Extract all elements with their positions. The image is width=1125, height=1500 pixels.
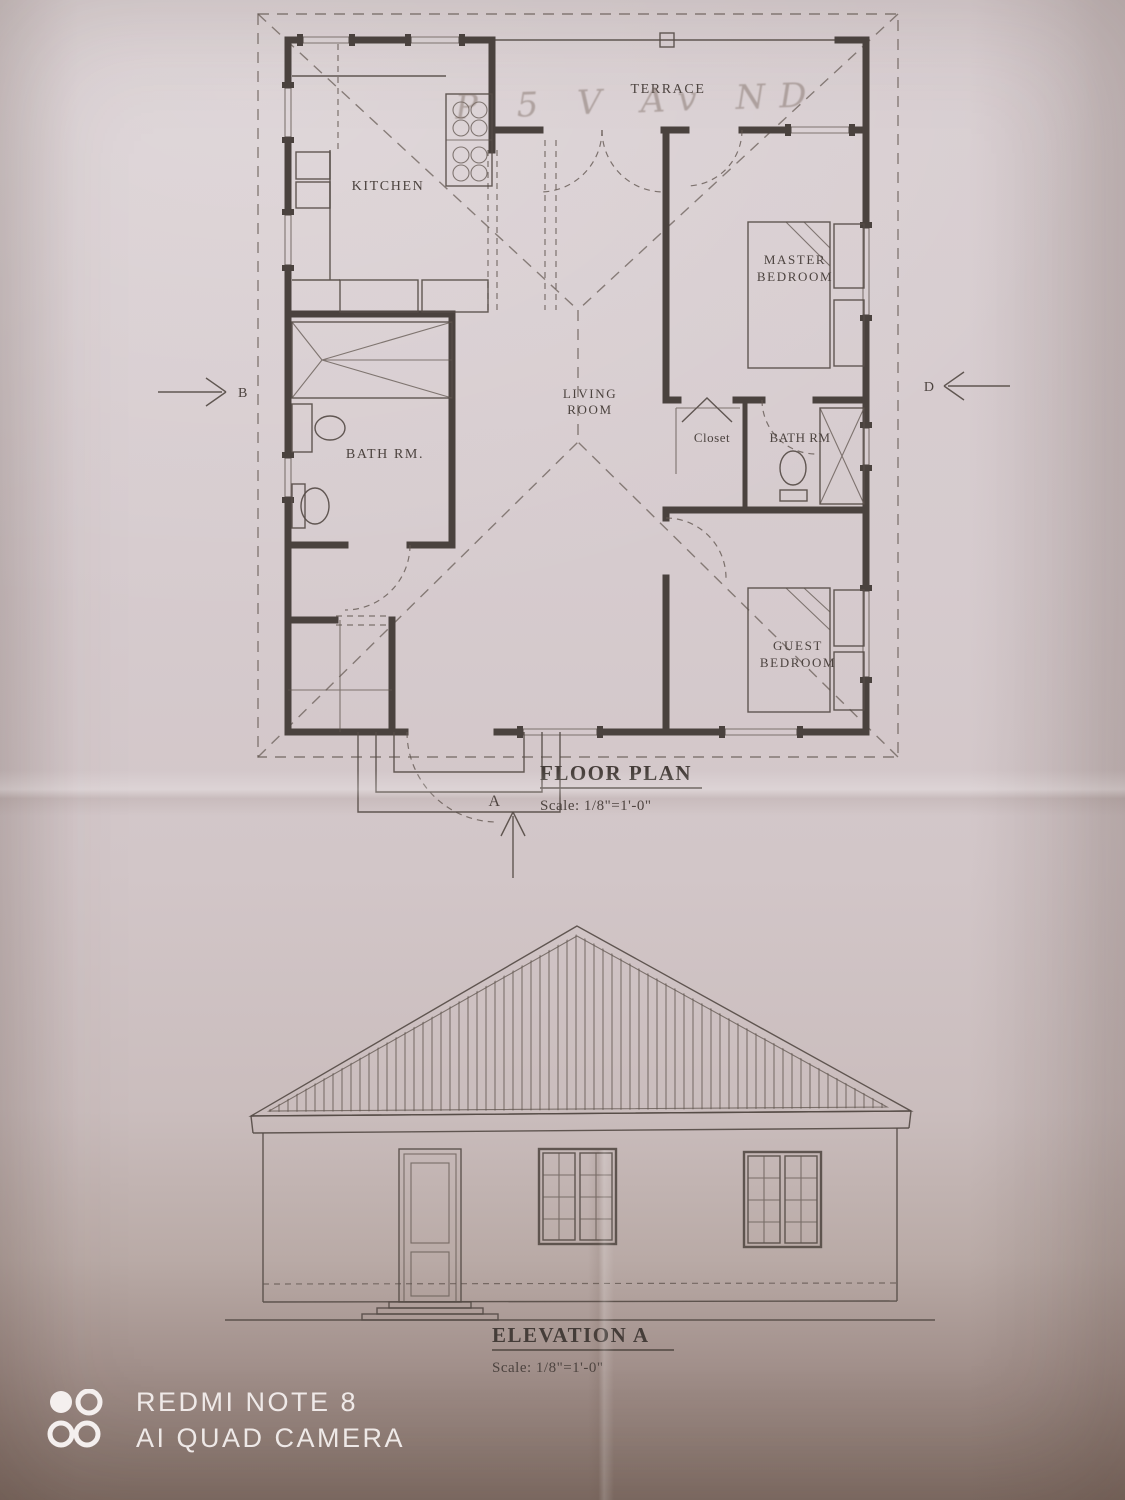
svg-text:B: B bbox=[238, 386, 247, 401]
svg-text:ROOM: ROOM bbox=[567, 402, 612, 417]
elevation-title: ELEVATION A Scale: 1/8"=1'-0" bbox=[492, 1323, 674, 1376]
watermark-device: REDMI NOTE 8 bbox=[136, 1388, 405, 1418]
kitchen-counter bbox=[340, 280, 488, 312]
entrance-steps bbox=[358, 732, 560, 812]
fascia bbox=[251, 1111, 911, 1133]
watermark-camera: AI QUAD CAMERA bbox=[136, 1424, 405, 1454]
redmi-quad-camera-logo-icon bbox=[46, 1389, 116, 1453]
svg-text:ELEVATION A: ELEVATION A bbox=[492, 1323, 650, 1347]
label-guest-bedroom: GUEST bbox=[773, 638, 823, 653]
label-living-room: LIVING bbox=[563, 386, 617, 401]
svg-text:Scale: 1/8"=1'-0": Scale: 1/8"=1'-0" bbox=[492, 1360, 603, 1376]
svg-text:A: A bbox=[488, 793, 500, 810]
window bbox=[788, 124, 852, 136]
svg-text:BEDROOM: BEDROOM bbox=[757, 269, 833, 284]
door-steps bbox=[362, 1302, 498, 1320]
photo-of-blueprint: TERRACE KITCHEN MASTER BEDROOM LIVING RO… bbox=[0, 0, 1125, 1500]
section-marker-B: B bbox=[158, 378, 247, 406]
window-right bbox=[744, 1152, 821, 1247]
bath-left-fixtures bbox=[292, 322, 452, 528]
entry-door bbox=[399, 1149, 461, 1302]
svg-text:FLOOR PLAN: FLOOR PLAN bbox=[540, 761, 692, 785]
toilet bbox=[780, 451, 807, 501]
window bbox=[860, 225, 872, 680]
bath-right-fixtures bbox=[676, 408, 864, 504]
kitchen-sink bbox=[296, 152, 330, 208]
toilet bbox=[292, 484, 329, 528]
label-kitchen: KITCHEN bbox=[352, 179, 425, 194]
label-closet: Closet bbox=[694, 430, 730, 445]
shower-stall bbox=[820, 408, 864, 504]
svg-text:D: D bbox=[924, 380, 934, 395]
roof bbox=[251, 926, 911, 1133]
label-bath-right: BATH RM bbox=[770, 430, 831, 445]
closet-door-chevron bbox=[682, 398, 732, 422]
floor-plan-drawing: TERRACE KITCHEN MASTER BEDROOM LIVING RO… bbox=[0, 0, 1125, 900]
master-bed bbox=[748, 222, 864, 368]
kitchen-fixtures bbox=[292, 44, 556, 312]
section-marker-A: A bbox=[488, 793, 525, 878]
svg-text:Scale: 1/8"=1'-0": Scale: 1/8"=1'-0" bbox=[540, 798, 651, 814]
camera-watermark: REDMI NOTE 8 AI QUAD CAMERA bbox=[46, 1388, 405, 1453]
label-bath-left: BATH RM. bbox=[346, 447, 424, 462]
floor-plan-title: FLOOR PLAN Scale: 1/8"=1'-0" bbox=[540, 761, 702, 814]
sink bbox=[292, 404, 345, 452]
section-marker-D: D bbox=[924, 372, 1010, 400]
window-left bbox=[539, 1149, 616, 1244]
roof-ribs bbox=[270, 930, 882, 1120]
label-master-bedroom: MASTER bbox=[764, 252, 826, 267]
svg-text:BEDROOM: BEDROOM bbox=[760, 655, 836, 670]
